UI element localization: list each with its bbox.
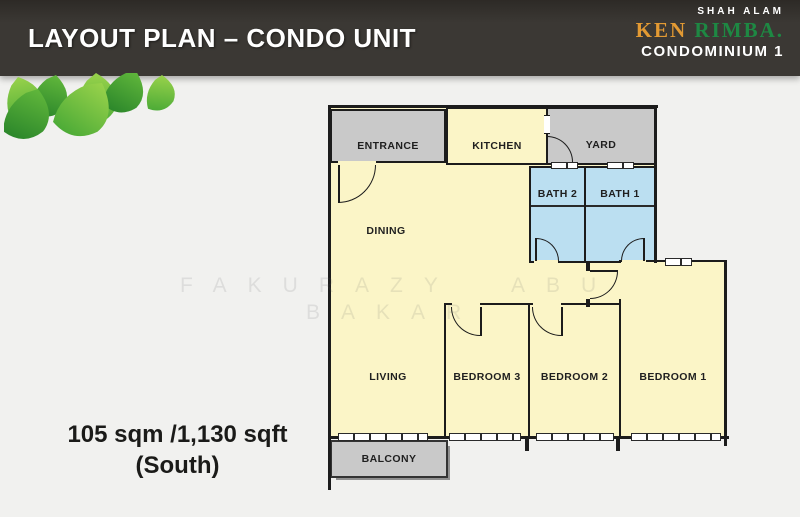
door-leaf-bath1: [643, 238, 645, 261]
wall-top: [328, 105, 658, 108]
vent-bath2: [551, 162, 578, 169]
brand-name-rimba: RIMBA.: [694, 18, 784, 42]
area-note: 105 sqm /1,130 sqft (South): [55, 419, 300, 481]
label-bedroom1: BEDROOM 1: [619, 371, 727, 383]
door-leaf-entrance: [338, 165, 340, 203]
vent-bath1: [607, 162, 634, 169]
door-opening-bedroom1: [619, 263, 622, 299]
label-kitchen: KITCHEN: [446, 140, 548, 152]
room-bath1: [584, 166, 656, 263]
window-living: [338, 433, 428, 441]
slide: { "header": { "title": "LAYOUT PLAN – CO…: [0, 0, 800, 517]
window-bedroom2: [536, 433, 614, 441]
door-leaf-bedroom1: [590, 270, 618, 272]
brand-subtitle: CONDOMINIUM 1: [636, 44, 784, 59]
label-bath2: BATH 2: [529, 188, 586, 200]
window-bedroom1-top: [665, 258, 692, 266]
bath2-divider-line: [531, 205, 584, 207]
label-bedroom2: BEDROOM 2: [528, 371, 621, 383]
wall-right-lower: [724, 260, 727, 446]
wall-right-upper: [654, 105, 657, 263]
area-note-size: 105 sqm /1,130 sqft: [55, 419, 300, 450]
window-bedroom1: [631, 433, 721, 441]
window-bedroom3: [449, 433, 521, 441]
brand-location: SHAH ALAM: [636, 7, 784, 17]
room-kitchen: [446, 107, 548, 165]
label-bedroom3: BEDROOM 3: [444, 371, 530, 383]
room-bedroom1: [619, 260, 727, 438]
brand-name: KEN RIMBA.: [636, 20, 784, 41]
wall-vestibule-stub-bottom: [586, 299, 590, 307]
wall-stub-bed2: [616, 439, 620, 451]
label-balcony: BALCONY: [330, 453, 448, 465]
door-leaf-bath2: [535, 238, 537, 261]
brand-logo: SHAH ALAM KEN RIMBA. CONDOMINIUM 1: [636, 7, 784, 59]
header-bar: LAYOUT PLAN – CONDO UNIT SHAH ALAM KEN R…: [0, 0, 800, 76]
door-leaf-bedroom2: [561, 307, 563, 336]
page-title: LAYOUT PLAN – CONDO UNIT: [28, 0, 416, 76]
bath1-divider-line: [586, 205, 654, 207]
floor-plan: ENTRANCE KITCHEN YARD BATH 2 BATH 1 DINI…: [320, 100, 732, 500]
watermark-line1: FAKURAZY ABU: [180, 274, 617, 298]
label-living: LIVING: [336, 371, 440, 383]
room-entrance: [330, 109, 446, 163]
area-note-orientation: (South): [55, 450, 300, 481]
leaves-icon: [4, 73, 184, 168]
wall-stub-bed3: [525, 439, 529, 451]
label-entrance: ENTRANCE: [330, 140, 446, 152]
brand-name-ken: KEN: [636, 18, 688, 42]
label-bath1: BATH 1: [584, 188, 656, 200]
door-opening-kitchen: [544, 115, 550, 134]
watermark-line2: BAKAR: [306, 301, 482, 325]
label-yard: YARD: [546, 139, 656, 151]
label-dining: DINING: [336, 225, 436, 237]
